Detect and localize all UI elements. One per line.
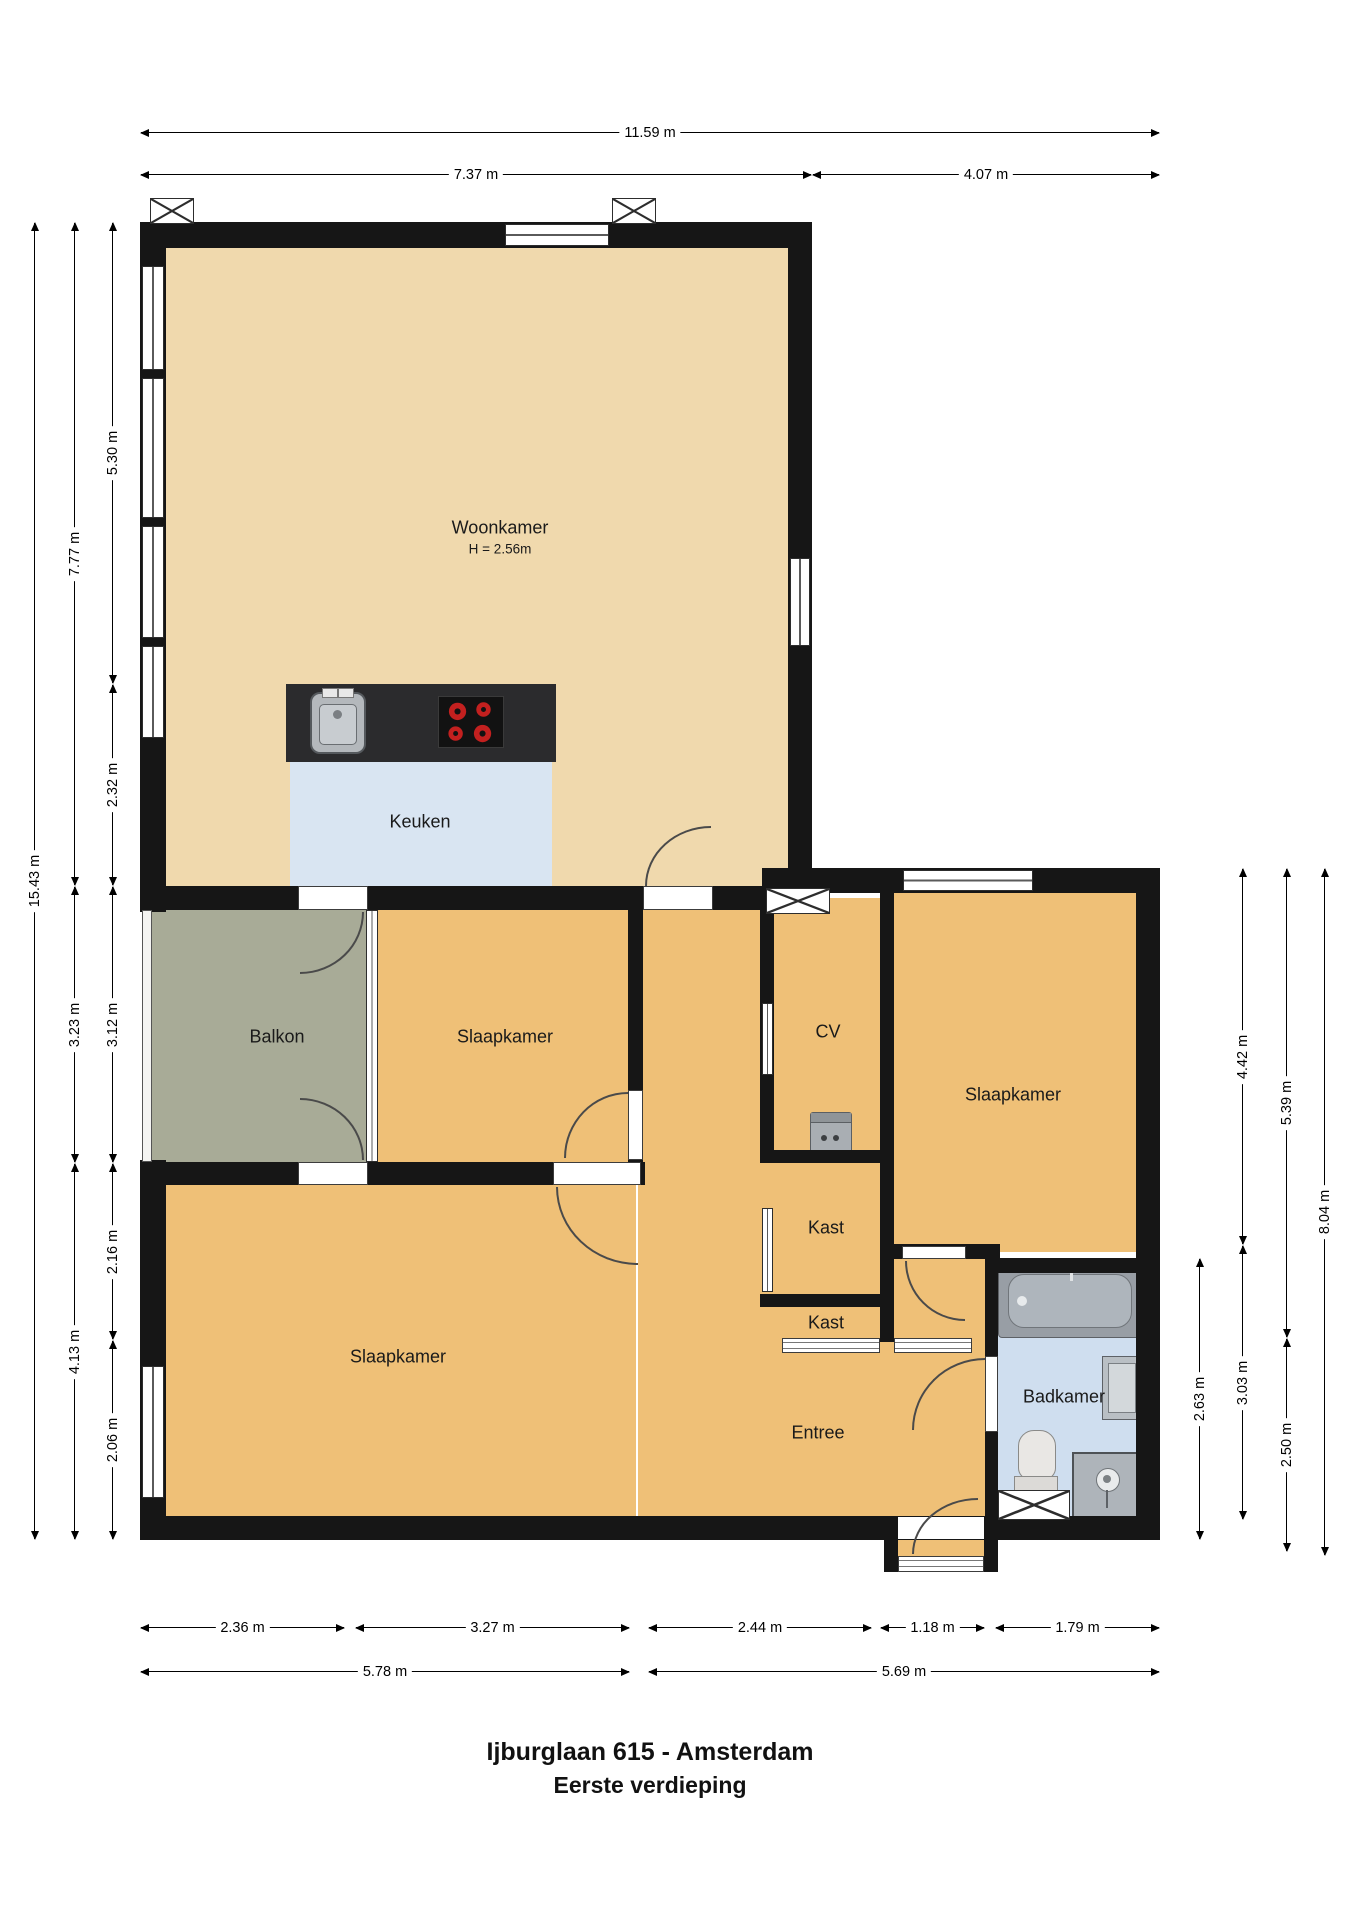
wall-mid-row-left: [140, 886, 645, 910]
dim-right-in-1: 4.42 m: [1236, 868, 1250, 1245]
dim-right-bath: 2.63 m: [1193, 1258, 1207, 1540]
shower-icon: [1072, 1452, 1142, 1522]
entree-label: Entree: [791, 1423, 844, 1444]
dim-left-total: 15.43 m: [28, 222, 42, 1540]
hall-floor: [638, 902, 766, 1172]
dim-left-mid-1-label: 7.77 m: [67, 527, 83, 581]
door-sill-balkon-bottom: [298, 1162, 368, 1185]
dim-left-in-3: 3.12 m: [106, 886, 120, 1163]
wall-kast-column-right: [880, 886, 894, 1342]
wall-top: [140, 222, 812, 248]
dim-left-in-5: 2.06 m: [106, 1340, 120, 1540]
window-left-4: [142, 646, 164, 738]
plan-title: Ijburglaan 615 - Amsterdam: [140, 1738, 1160, 1767]
closet-sill-nook: [894, 1338, 972, 1353]
toilet-icon: [1014, 1430, 1058, 1496]
dim-right-mid-1: 5.39 m: [1280, 868, 1294, 1338]
dim-right-mid-2-label: 2.50 m: [1279, 1418, 1295, 1472]
dim-bottom-3: 2.44 m: [648, 1621, 872, 1635]
window-cv-wall: [762, 1003, 773, 1075]
dim-right-in-1-label: 4.42 m: [1235, 1029, 1251, 1083]
balkon-railing-left: [142, 910, 152, 1162]
dim-bottom-right-total: 5.69 m: [648, 1665, 1160, 1679]
dim-top-left: 7.37 m: [140, 168, 812, 182]
window-right-section-top: [903, 870, 1033, 891]
slaapkamer-mid-label: Slaapkamer: [457, 1027, 553, 1048]
dim-left-in-2-label: 2.32 m: [105, 758, 121, 812]
wall-right-outer: [1136, 868, 1160, 1540]
bathtub-icon: [998, 1264, 1142, 1338]
wall-bump-right: [984, 1516, 998, 1572]
dim-left-in-4: 2.16 m: [106, 1163, 120, 1340]
window-kast-wall: [762, 1208, 773, 1292]
floorplan-page: Woonkamer H = 2.56m Keuken Balkon Slaapk…: [0, 0, 1358, 1920]
door-sill-balkon-top: [298, 886, 368, 910]
dim-right-in-2-label: 3.03 m: [1235, 1355, 1251, 1409]
dim-right-in-2: 3.03 m: [1236, 1245, 1250, 1520]
cv-label: CV: [815, 1022, 840, 1043]
wall-woonkamer-right: [788, 222, 812, 870]
dim-left-in-1-label: 5.30 m: [105, 426, 121, 480]
dim-left-in-3-label: 3.12 m: [105, 997, 121, 1051]
dim-bottom-5-label: 1.79 m: [1050, 1620, 1104, 1636]
wall-badkamer-top: [985, 1258, 1160, 1273]
balkon-label: Balkon: [249, 1027, 304, 1048]
wall-kast1-bottom: [760, 1294, 880, 1307]
window-slaapkamer-bottom: [142, 1366, 164, 1498]
dim-left-mid-3: 4.13 m: [68, 1163, 82, 1540]
door-sill-slaapkamer-bottom: [553, 1162, 641, 1185]
sink-icon: [310, 692, 366, 754]
dim-bottom-left-total-label: 5.78 m: [358, 1664, 412, 1680]
dim-bottom-2-label: 3.27 m: [465, 1620, 519, 1636]
window-top-wall: [505, 224, 609, 246]
window-left-1: [142, 266, 164, 370]
boiler-icon: [810, 1112, 852, 1154]
dim-left-in-5-label: 2.06 m: [105, 1413, 121, 1467]
dim-top-right: 4.07 m: [812, 168, 1160, 182]
plan-subtitle: Eerste verdieping: [140, 1772, 1160, 1799]
dim-bottom-right-total-label: 5.69 m: [877, 1664, 931, 1680]
dim-bottom-1: 2.36 m: [140, 1621, 345, 1635]
kast-upper-label: Kast: [808, 1218, 844, 1239]
door-sill-hall: [643, 886, 713, 910]
woonkamer-height-note: H = 2.56m: [469, 542, 532, 557]
dim-right-total: 8.04 m: [1318, 868, 1332, 1556]
dim-right-total-label: 8.04 m: [1317, 1185, 1333, 1239]
dim-left-total-label: 15.43 m: [27, 850, 43, 912]
dim-top-total: 11.59 m: [140, 126, 1160, 140]
door-sill-badkamer: [985, 1356, 998, 1432]
kast-lower-label: Kast: [808, 1313, 844, 1334]
dim-bottom-2: 3.27 m: [355, 1621, 630, 1635]
vent-cross-icon-top-left: [150, 198, 194, 224]
closet-sill-kast: [782, 1338, 880, 1353]
dim-left-in-1: 5.30 m: [106, 222, 120, 684]
window-left-3: [142, 526, 164, 638]
vent-cross-icon-badkamer: [998, 1490, 1070, 1520]
badkamer-label: Badkamer: [1023, 1387, 1105, 1408]
dim-left-mid-1: 7.77 m: [68, 222, 82, 886]
dim-bottom-1-label: 2.36 m: [215, 1620, 269, 1636]
dim-right-mid-1-label: 5.39 m: [1279, 1076, 1295, 1130]
balkon-glass-wall: [366, 910, 378, 1162]
vent-cross-icon-top-mid: [612, 198, 656, 224]
dim-top-left-label: 7.37 m: [449, 167, 503, 183]
dim-left-mid-2: 3.23 m: [68, 886, 82, 1163]
dim-top-right-label: 4.07 m: [959, 167, 1013, 183]
dim-left-in-2: 2.32 m: [106, 684, 120, 886]
slaapkamer-bottom-label: Slaapkamer: [350, 1347, 446, 1368]
window-left-2: [142, 378, 164, 518]
front-door-sill: [898, 1556, 984, 1572]
door-sill-slaapkamer-right: [902, 1246, 966, 1259]
woonkamer-label: Woonkamer: [452, 518, 549, 539]
dim-right-mid-2: 2.50 m: [1280, 1338, 1294, 1552]
dim-bottom-5: 1.79 m: [995, 1621, 1160, 1635]
window-woonkamer-right: [790, 558, 810, 646]
keuken-label: Keuken: [389, 812, 450, 833]
dim-bottom-3-label: 2.44 m: [733, 1620, 787, 1636]
dim-top-total-label: 11.59 m: [619, 125, 680, 141]
stove-icon: [438, 696, 504, 748]
wall-bump-left: [884, 1516, 898, 1572]
slaapkamer-right-label: Slaapkamer: [965, 1085, 1061, 1106]
door-sill-slaapkamer-mid: [628, 1090, 643, 1160]
dim-left-in-4-label: 2.16 m: [105, 1224, 121, 1278]
dim-left-mid-3-label: 4.13 m: [67, 1324, 83, 1378]
vent-cross-icon-cv: [766, 888, 830, 914]
wall-cv-kast-divider: [760, 1150, 894, 1163]
dim-bottom-left-total: 5.78 m: [140, 1665, 630, 1679]
dim-bottom-4-label: 1.18 m: [905, 1620, 959, 1636]
dim-right-bath-label: 2.63 m: [1192, 1372, 1208, 1426]
dim-left-mid-2-label: 3.23 m: [67, 997, 83, 1051]
dim-bottom-4: 1.18 m: [880, 1621, 985, 1635]
